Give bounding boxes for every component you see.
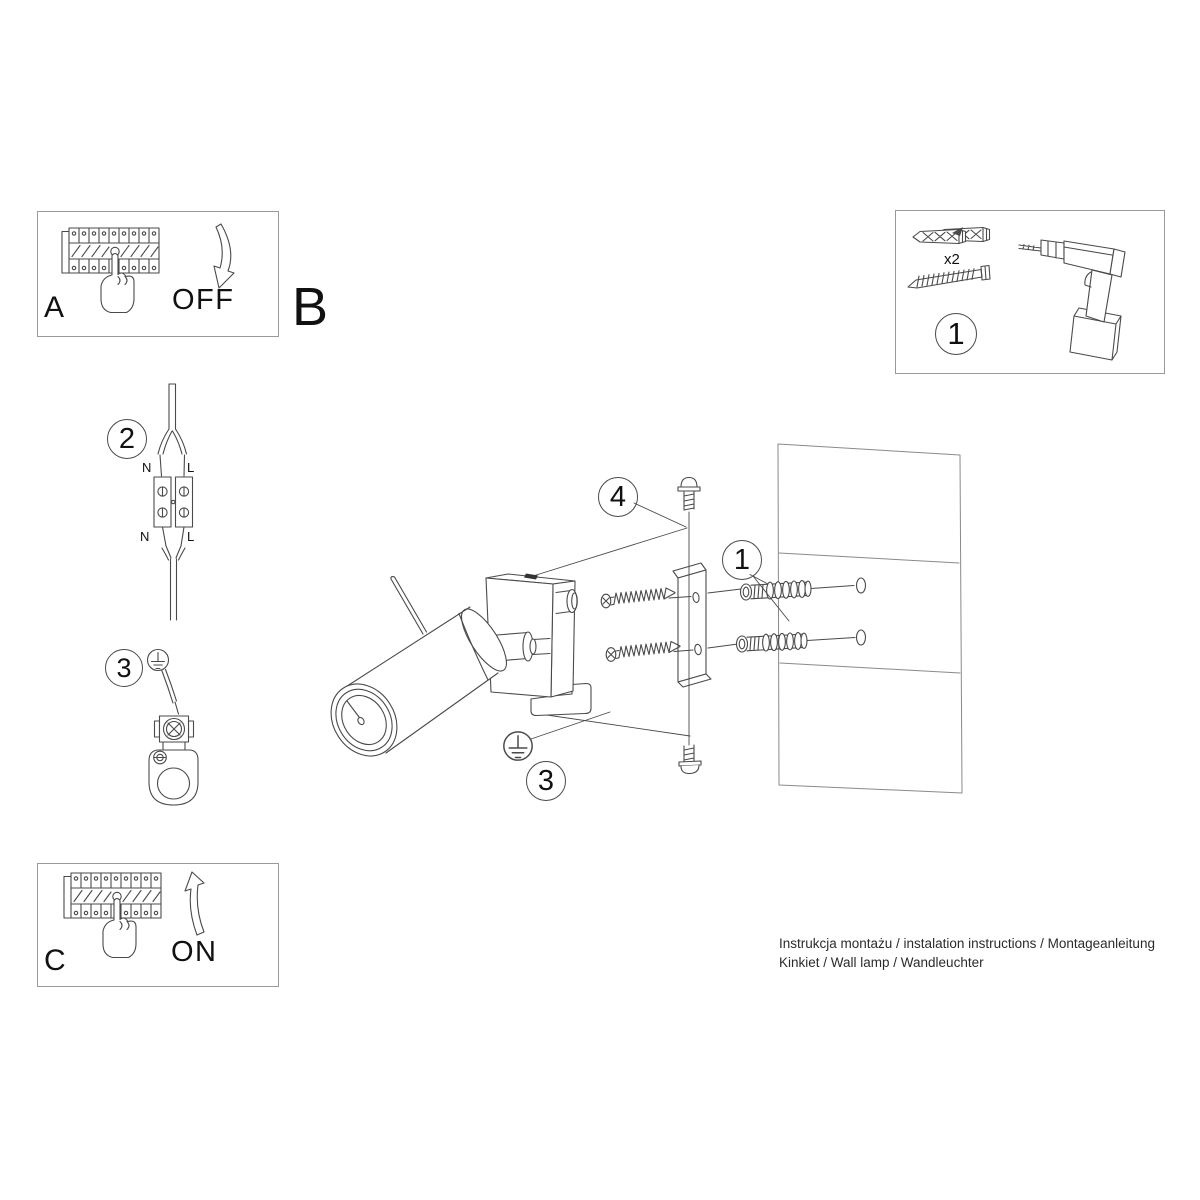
wall-hole-top — [857, 578, 866, 593]
step-c-label: C — [44, 944, 66, 978]
wall-anchors — [737, 581, 856, 652]
wall-lamp — [318, 574, 591, 769]
callout-kit-1: 1 — [935, 313, 977, 355]
toggle-stick — [391, 577, 427, 634]
set-screw-top — [678, 478, 700, 511]
panel-a-box — [37, 211, 279, 337]
callout-2: 2 — [107, 419, 147, 459]
diagram-art — [0, 0, 1200, 1200]
wall — [778, 444, 962, 793]
instruction-sheet: A OFF B C ON x2 N L N L 1 2 3 4 1 3 Inst… — [0, 0, 1200, 1200]
wire-label-l-bottom: L — [187, 529, 194, 544]
ground-symbol-main — [504, 732, 532, 760]
plug-quantity: x2 — [944, 251, 960, 268]
footer-line-1: Instrukcja montażu / instalation instruc… — [779, 934, 1179, 953]
mounting-bracket — [673, 563, 711, 687]
wire-label-n-bottom: N — [140, 529, 149, 544]
wall-hole-bottom — [857, 630, 866, 645]
footer-text: Instrukcja montażu / instalation instruc… — [779, 934, 1179, 972]
on-label: ON — [171, 936, 218, 969]
callout-3-left: 3 — [105, 649, 143, 687]
callout-3-main: 3 — [526, 761, 566, 801]
kit-box — [895, 210, 1165, 374]
callout-4: 4 — [598, 477, 638, 517]
step-b-label: B — [292, 276, 328, 338]
terminal-block-wiring — [154, 384, 193, 620]
callout-1-main: 1 — [722, 540, 762, 580]
panel-c-box — [37, 863, 279, 987]
mounting-screws — [601, 588, 741, 661]
footer-line-2: Kinkiet / Wall lamp / Wandleuchter — [779, 953, 1179, 972]
wire-label-n-top: N — [142, 460, 151, 475]
step-a-label: A — [44, 291, 64, 325]
set-screw-bottom — [679, 745, 701, 774]
ground-terminal-detail — [148, 650, 199, 806]
wire-label-l-top: L — [187, 460, 194, 475]
off-label: OFF — [172, 284, 235, 317]
